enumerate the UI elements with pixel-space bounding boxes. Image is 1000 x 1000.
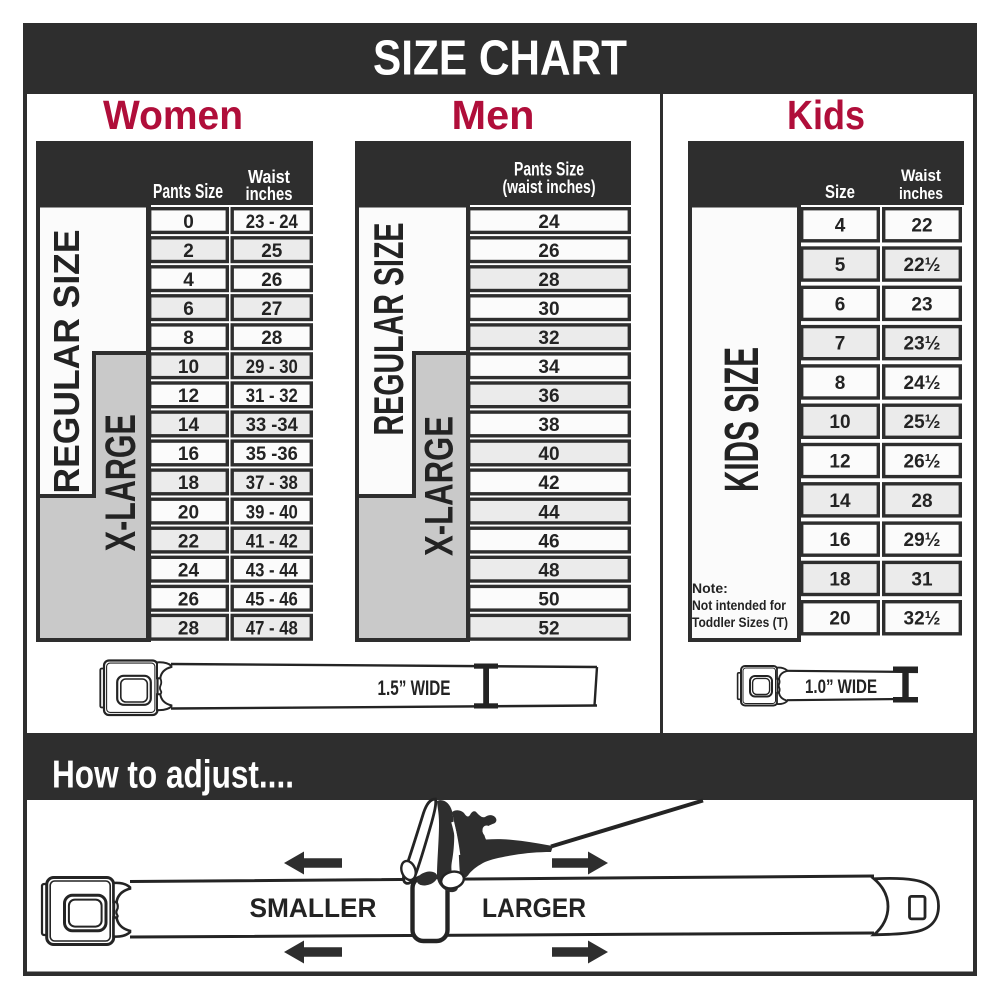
svg-text:4: 4 [835, 216, 846, 237]
svg-text:24: 24 [538, 212, 560, 233]
svg-text:45 - 46: 45 - 46 [246, 590, 298, 611]
svg-text:Men: Men [452, 92, 535, 138]
svg-text:40: 40 [538, 444, 559, 465]
svg-text:18: 18 [829, 569, 850, 590]
svg-text:5: 5 [835, 255, 846, 276]
svg-text:2: 2 [183, 241, 194, 262]
svg-text:16: 16 [829, 530, 850, 551]
svg-text:22: 22 [178, 531, 199, 552]
svg-text:7: 7 [835, 334, 846, 355]
svg-text:46: 46 [538, 531, 559, 552]
svg-text:12: 12 [829, 452, 850, 473]
svg-text:39 - 40: 39 - 40 [246, 502, 298, 523]
svg-text:inches: inches [899, 184, 943, 203]
svg-text:REGULAR SIZE: REGULAR SIZE [365, 223, 412, 436]
svg-text:1.0” WIDE: 1.0” WIDE [805, 677, 877, 698]
svg-text:31 - 32: 31 - 32 [246, 386, 298, 407]
svg-text:26: 26 [538, 241, 559, 262]
svg-text:22: 22 [911, 216, 932, 237]
svg-text:Toddler Sizes (T): Toddler Sizes (T) [692, 614, 788, 630]
svg-text:KIDS SIZE: KIDS SIZE [716, 347, 769, 492]
svg-text:8: 8 [183, 328, 194, 349]
svg-text:28: 28 [178, 619, 199, 640]
svg-text:1.5” WIDE: 1.5” WIDE [378, 677, 451, 700]
svg-text:0: 0 [183, 212, 194, 233]
svg-text:Pants Size: Pants Size [153, 181, 223, 203]
svg-text:6: 6 [183, 299, 194, 320]
svg-text:23: 23 [911, 294, 932, 315]
svg-text:27: 27 [261, 299, 282, 320]
svg-text:34: 34 [538, 357, 560, 378]
svg-text:SMALLER: SMALLER [250, 893, 377, 923]
svg-text:inches: inches [246, 184, 293, 204]
svg-text:25½: 25½ [904, 412, 941, 433]
svg-text:28: 28 [261, 328, 282, 349]
svg-text:26½: 26½ [904, 452, 941, 473]
svg-text:50: 50 [538, 590, 559, 611]
svg-text:4: 4 [183, 270, 194, 291]
svg-text:28: 28 [538, 270, 559, 291]
svg-text:32: 32 [538, 328, 559, 349]
svg-text:Not intended for: Not intended for [692, 597, 786, 613]
svg-text:35 -36: 35 -36 [246, 444, 298, 465]
svg-text:33 -34: 33 -34 [246, 415, 298, 436]
svg-text:36: 36 [538, 386, 559, 407]
svg-text:24½: 24½ [904, 373, 941, 394]
svg-text:31: 31 [911, 569, 933, 590]
svg-text:20: 20 [829, 609, 850, 630]
svg-text:Women: Women [103, 92, 243, 138]
svg-text:37 - 38: 37 - 38 [246, 473, 298, 494]
svg-text:29 - 30: 29 - 30 [246, 357, 298, 378]
svg-text:26: 26 [261, 270, 282, 291]
svg-text:41 - 42: 41 - 42 [246, 531, 298, 552]
svg-text:16: 16 [178, 444, 199, 465]
svg-text:52: 52 [538, 619, 559, 640]
svg-text:28: 28 [911, 491, 932, 512]
svg-text:29½: 29½ [904, 530, 941, 551]
svg-text:Kids: Kids [787, 92, 865, 138]
svg-text:24: 24 [178, 560, 200, 581]
svg-text:23 - 24: 23 - 24 [246, 212, 298, 233]
svg-text:48: 48 [538, 560, 559, 581]
svg-text:43 - 44: 43 - 44 [246, 560, 298, 581]
svg-text:14: 14 [178, 415, 200, 436]
svg-text:Note:: Note: [692, 580, 728, 596]
svg-text:Waist: Waist [901, 166, 941, 185]
svg-text:10: 10 [829, 412, 850, 433]
svg-text:10: 10 [178, 357, 199, 378]
svg-text:20: 20 [178, 502, 199, 523]
svg-text:How to adjust....: How to adjust.... [52, 754, 294, 797]
svg-text:18: 18 [178, 473, 199, 494]
svg-text:47 - 48: 47 - 48 [246, 619, 298, 640]
svg-text:6: 6 [835, 294, 846, 315]
svg-text:(waist inches): (waist inches) [503, 177, 596, 197]
svg-text:38: 38 [538, 415, 559, 436]
svg-text:REGULAR SIZE: REGULAR SIZE [46, 230, 87, 494]
svg-text:44: 44 [538, 502, 560, 523]
svg-text:25: 25 [261, 241, 283, 262]
svg-text:Size: Size [825, 182, 855, 202]
svg-text:26: 26 [178, 590, 199, 611]
svg-text:8: 8 [835, 373, 846, 394]
svg-text:42: 42 [538, 473, 559, 494]
svg-text:12: 12 [178, 386, 199, 407]
svg-text:30: 30 [538, 299, 559, 320]
svg-text:14: 14 [829, 491, 851, 512]
svg-text:X-LARGE: X-LARGE [417, 416, 461, 556]
svg-text:22½: 22½ [904, 255, 941, 276]
svg-text:23½: 23½ [904, 334, 941, 355]
svg-text:SIZE CHART: SIZE CHART [373, 31, 627, 86]
svg-text:X-LARGE: X-LARGE [97, 414, 145, 551]
svg-text:LARGER: LARGER [482, 893, 586, 923]
svg-text:32½: 32½ [904, 609, 941, 630]
